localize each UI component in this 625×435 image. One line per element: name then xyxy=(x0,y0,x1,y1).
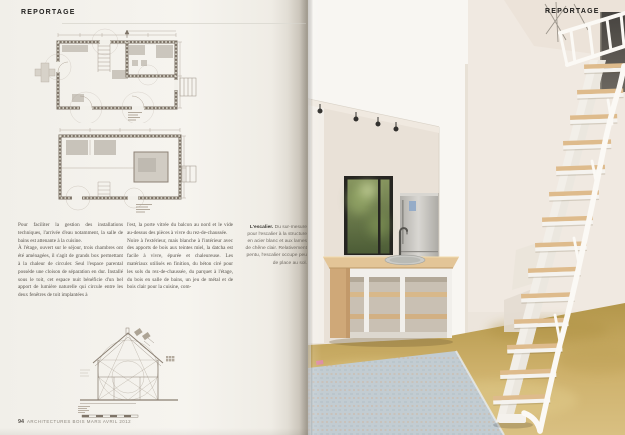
stair-tread xyxy=(493,394,550,406)
plan1-legend xyxy=(128,112,142,121)
ground-floor-plan xyxy=(28,28,210,123)
plan2-beds xyxy=(66,135,125,156)
section-annotations xyxy=(78,356,174,413)
stair-tread xyxy=(528,267,581,279)
plan1-stair xyxy=(98,44,110,72)
kitchen-window xyxy=(344,176,393,257)
plan1-furniture xyxy=(62,45,173,102)
paragraph: Pour faciliter la gestion des installati… xyxy=(18,222,123,245)
section-left-dims xyxy=(80,370,90,376)
photo-caption: L'escalier. Du sur-mesure pour l'escalie… xyxy=(243,224,307,267)
drawing-sheet-edge xyxy=(62,23,306,24)
paragraph: Noire à l'extérieur, mais blanche à l'in… xyxy=(127,238,233,293)
section-kicker-left: REPORTAGE xyxy=(21,9,76,16)
section-kicker-right: REPORTAGE xyxy=(545,8,600,15)
plan2-legend xyxy=(136,204,152,213)
plan1-deck-cross xyxy=(35,63,55,82)
magazine-spread: REPORTAGE xyxy=(0,0,625,435)
cross-section-drawing xyxy=(78,320,186,428)
stair-tread xyxy=(514,318,569,330)
caption-body: Du sur-mesure pour l'escalier à la struc… xyxy=(246,225,307,266)
island-shadow xyxy=(329,337,453,347)
paragraph: l'est, la porte vitrée du balcon au nord… xyxy=(127,222,233,238)
stair-tread xyxy=(584,63,625,74)
paragraph: À l'étage, ouvert sur le séjour, trois c… xyxy=(18,245,123,300)
page-number: 94 xyxy=(18,419,24,425)
north-arrow-icon xyxy=(125,30,129,38)
folio: 94ARCHITECTURES BOIS MARS AVRIL 2012 xyxy=(18,419,131,425)
left-page: REPORTAGE xyxy=(0,0,308,435)
sink xyxy=(385,255,425,265)
stair-tread xyxy=(500,369,556,381)
body-column-1: Pour faciliter la gestion des installati… xyxy=(18,222,123,300)
caption-title: L'escalier. xyxy=(250,225,273,230)
stair-foot xyxy=(498,414,526,423)
magazine-title: ARCHITECTURES BOIS MARS AVRIL 2012 xyxy=(27,419,131,424)
stair-tread xyxy=(521,292,575,304)
section-scale-bar xyxy=(82,415,138,417)
plan2-parental-room xyxy=(134,152,168,182)
plan1-entry-steps xyxy=(180,78,196,96)
section-braces xyxy=(98,333,158,400)
stair-tread xyxy=(535,241,587,253)
interior-photo xyxy=(308,0,625,435)
section-structure xyxy=(80,328,178,404)
upper-floor-plan xyxy=(38,124,208,219)
kitchen-island xyxy=(323,257,459,338)
stair-tread xyxy=(507,343,563,355)
body-column-2: l'est, la porte vitrée du balcon au nord… xyxy=(127,222,233,292)
right-page-photo: REPORTAGE xyxy=(308,0,625,435)
page-edge-highlight xyxy=(308,0,311,435)
